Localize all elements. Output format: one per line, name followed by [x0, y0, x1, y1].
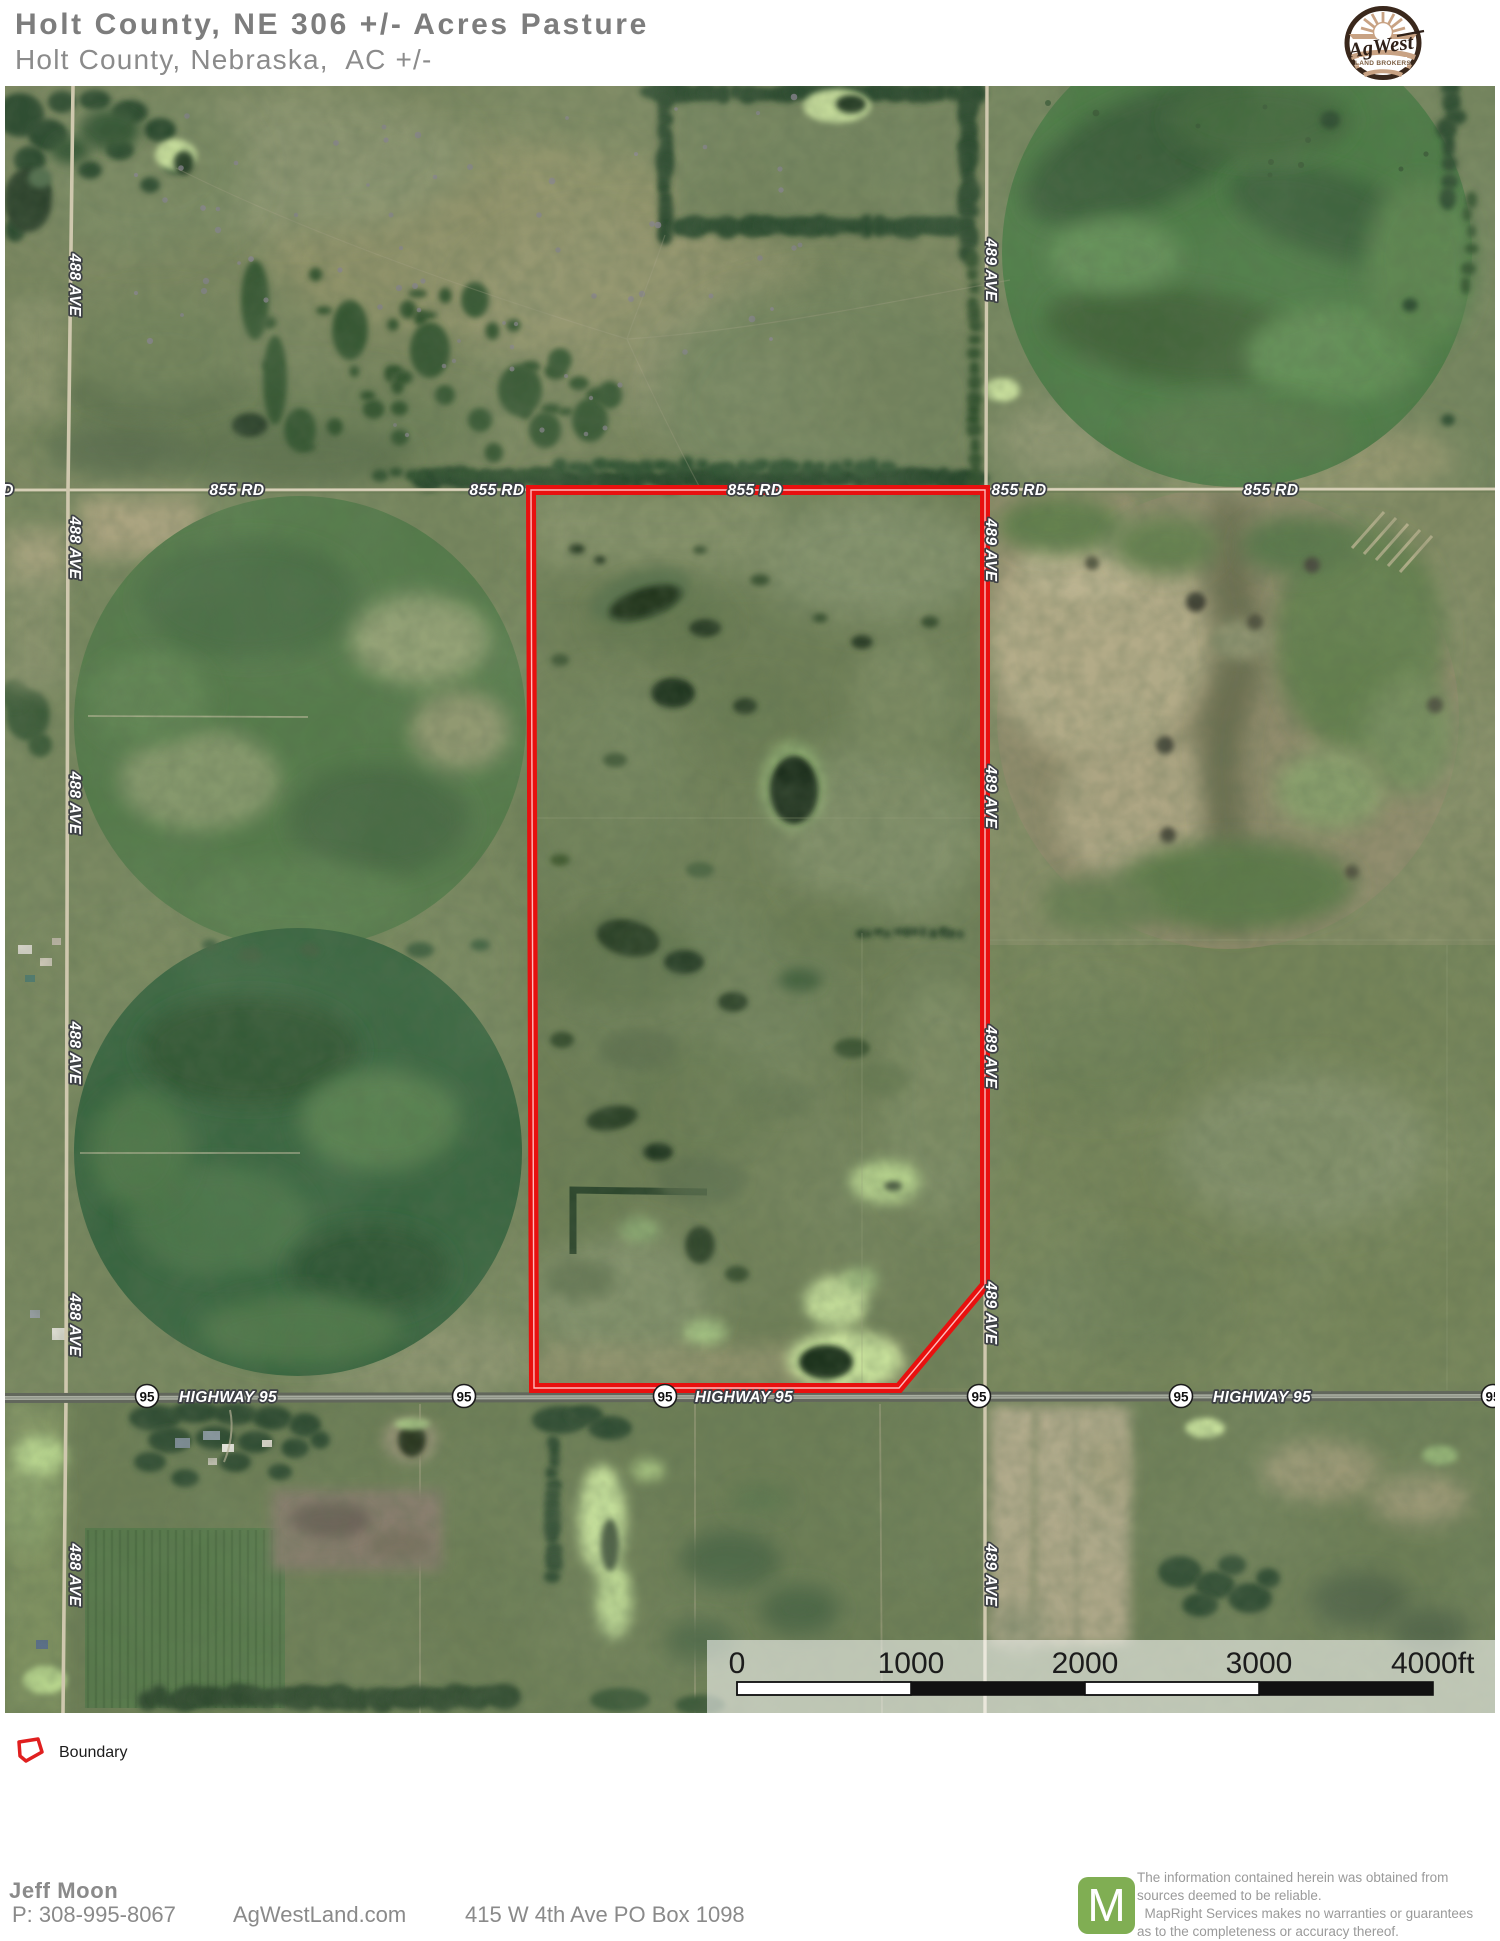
svg-text:HIGHWAY 95: HIGHWAY 95: [179, 1389, 277, 1406]
svg-text:95: 95: [139, 1390, 155, 1405]
svg-text:488 AVE: 488 AVE: [66, 1292, 83, 1356]
svg-text:855 RD: 855 RD: [1244, 482, 1299, 499]
svg-text:LAND BROKERS: LAND BROKERS: [1355, 60, 1411, 67]
svg-text:1000: 1000: [878, 1647, 945, 1680]
svg-text:855 RD: 855 RD: [470, 482, 525, 499]
svg-text:489 AVE: 489 AVE: [982, 237, 999, 301]
svg-text:95: 95: [1173, 1390, 1189, 1405]
svg-text:HIGHWAY 95: HIGHWAY 95: [695, 1389, 793, 1406]
svg-text:4000ft: 4000ft: [1391, 1647, 1475, 1680]
svg-text:488 AVE: 488 AVE: [66, 252, 83, 316]
svg-text:3000: 3000: [1226, 1647, 1293, 1680]
svg-text:489 AVE: 489 AVE: [982, 1542, 999, 1606]
svg-text:0: 0: [729, 1647, 746, 1680]
svg-text:95: 95: [971, 1390, 987, 1405]
svg-text:488 AVE: 488 AVE: [66, 1020, 83, 1084]
svg-text:489 AVE: 489 AVE: [982, 517, 999, 581]
svg-text:HIGHWAY 95: HIGHWAY 95: [1213, 1389, 1311, 1406]
svg-text:855 RD: 855 RD: [728, 482, 783, 499]
svg-text:855 RD: 855 RD: [992, 482, 1047, 499]
svg-text:488 AVE: 488 AVE: [66, 515, 83, 579]
svg-text:M: M: [1087, 1879, 1125, 1931]
svg-text:2000: 2000: [1052, 1647, 1119, 1680]
svg-text:489 AVE: 489 AVE: [982, 1024, 999, 1088]
svg-text:489 AVE: 489 AVE: [982, 764, 999, 828]
svg-text:855 RD: 855 RD: [210, 482, 265, 499]
svg-text:488 AVE: 488 AVE: [66, 1542, 83, 1606]
svg-text:95: 95: [657, 1390, 673, 1405]
svg-text:489 AVE: 489 AVE: [982, 1280, 999, 1344]
svg-text:95: 95: [1485, 1390, 1495, 1405]
svg-text:D: D: [5, 482, 14, 499]
svg-text:488 AVE: 488 AVE: [66, 770, 83, 834]
svg-text:95: 95: [456, 1390, 472, 1405]
